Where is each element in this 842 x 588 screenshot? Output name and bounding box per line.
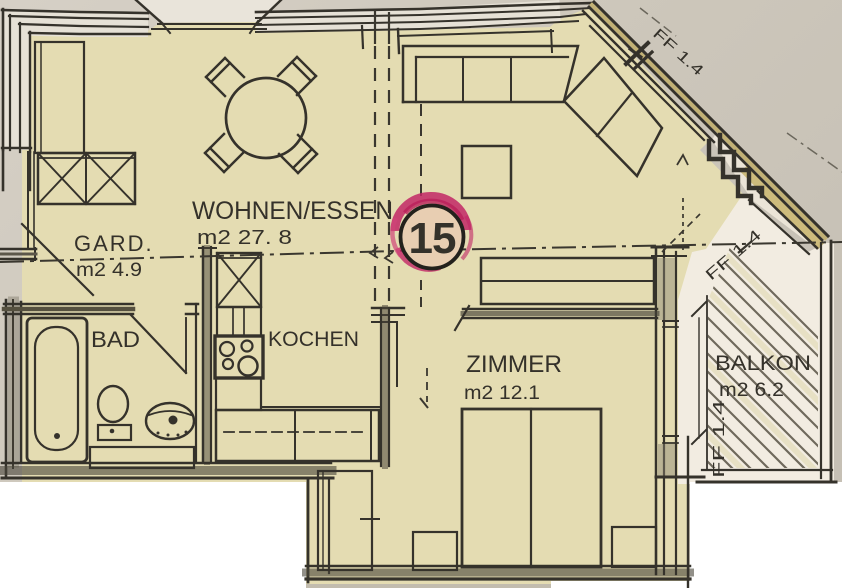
- svg-text:WOHNEN/ESSEN: WOHNEN/ESSEN: [192, 197, 393, 225]
- svg-text:FF 1.4: FF 1.4: [711, 400, 728, 478]
- svg-text:ZIMMER: ZIMMER: [466, 351, 562, 378]
- svg-text:15: 15: [409, 214, 456, 263]
- svg-text:BALKON: BALKON: [715, 352, 811, 375]
- svg-text:m2 4.9: m2 4.9: [76, 260, 142, 281]
- svg-text:m2 6.2: m2 6.2: [719, 380, 784, 401]
- svg-text:m2 12.1: m2 12.1: [464, 383, 540, 404]
- svg-text:GARD.: GARD.: [74, 231, 154, 256]
- svg-text:m2 27. 8: m2 27. 8: [197, 227, 292, 249]
- svg-text:BAD: BAD: [91, 327, 140, 352]
- svg-text:KOCHEN: KOCHEN: [268, 328, 359, 351]
